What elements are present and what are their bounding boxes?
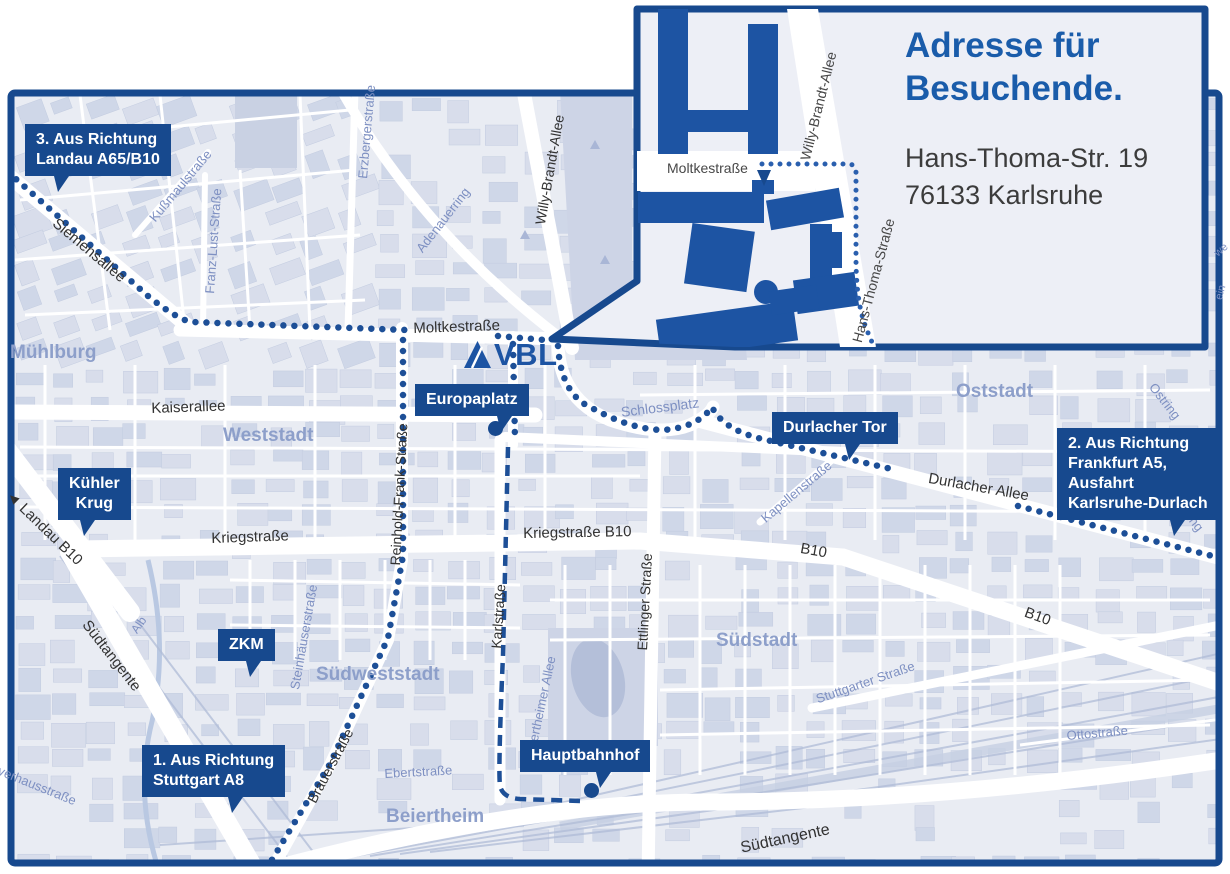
inset-title-line1: Adresse für bbox=[905, 26, 1100, 65]
callout-zkm: ZKM bbox=[218, 629, 275, 661]
callout-route-3-landau: 3. Aus RichtungLandau A65/B10 bbox=[25, 124, 171, 176]
location-dot-europaplatz bbox=[488, 421, 503, 436]
inset-title-line2: Besuchende. bbox=[905, 69, 1123, 108]
vbl-logo-text: VBL bbox=[494, 339, 558, 370]
inset-title: Adresse fürBesuchende. bbox=[905, 24, 1123, 110]
callout-tail-icon bbox=[1170, 520, 1185, 536]
callout-tail-icon bbox=[80, 520, 95, 536]
callout-europaplatz: Europaplatz bbox=[415, 384, 529, 416]
callout-durlacher-tor: Durlacher Tor bbox=[772, 412, 898, 444]
callout-route-1-stuttgart: 1. Aus RichtungStuttgart A8 bbox=[142, 745, 285, 797]
map-page: SiemensalleeKußmaulstraßeFranz-Lust-Stra… bbox=[0, 0, 1230, 874]
inset-address-line2: 76133 Karlsruhe bbox=[905, 180, 1103, 210]
inset-address-line1: Hans-Thoma-Str. 19 bbox=[905, 143, 1148, 173]
callout-tail-icon bbox=[54, 176, 69, 192]
callout-tail-icon bbox=[228, 797, 243, 813]
callout-hauptbahnhof: Hauptbahnhof bbox=[520, 740, 650, 772]
callout-tail-icon bbox=[845, 444, 860, 460]
callout-tail-icon bbox=[246, 661, 261, 677]
inset-address: Hans-Thoma-Str. 1976133 Karlsruhe bbox=[905, 140, 1148, 214]
location-dot-hauptbahnhof bbox=[584, 783, 599, 798]
callout-kuehler-krug: KühlerKrug bbox=[58, 468, 131, 520]
vbl-logo: VBL bbox=[464, 339, 558, 370]
vbl-logo-triangle-icon bbox=[464, 341, 491, 368]
callout-route-2-frankfurt: 2. Aus RichtungFrankfurt A5,AusfahrtKarl… bbox=[1057, 428, 1219, 520]
